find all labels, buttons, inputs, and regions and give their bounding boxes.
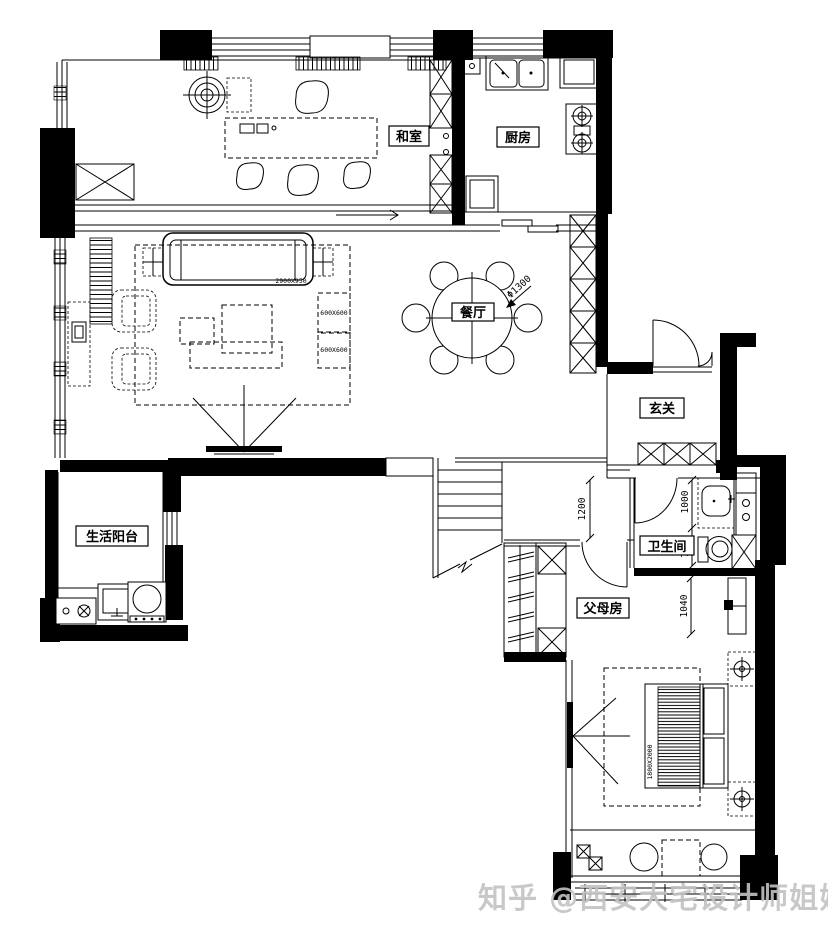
sofa-size-label: 2900X950 bbox=[275, 277, 306, 285]
window-sill-grille bbox=[296, 57, 360, 70]
side-cabinet-1: 600X600 bbox=[318, 293, 350, 333]
floor-plan-page: 和室 bbox=[0, 0, 828, 926]
kitchen-sliding-door bbox=[502, 220, 558, 232]
entry-label: 玄关 bbox=[649, 401, 675, 417]
living-room: 2900X950 600X600 600X600 bbox=[54, 225, 607, 458]
room-label-parents: 父母房 bbox=[577, 598, 629, 618]
kitchen-counter-appliance bbox=[560, 56, 598, 88]
bedroom-closet-stub bbox=[724, 578, 746, 634]
room-label-tatami: 和室 bbox=[389, 126, 429, 146]
entry-door bbox=[653, 320, 712, 366]
closet-dim: 1040 bbox=[679, 574, 695, 638]
dining-cabinet bbox=[570, 215, 596, 373]
divider-cabinet bbox=[430, 60, 452, 213]
window-tick bbox=[54, 420, 66, 434]
tv-screen bbox=[206, 446, 282, 452]
window-sill-grille bbox=[184, 57, 218, 70]
bay-furniture bbox=[577, 840, 727, 876]
bedroom-tv bbox=[567, 698, 630, 784]
room-label-bathroom: 卫生间 bbox=[640, 536, 694, 555]
corridor-width: 1200 bbox=[577, 497, 588, 520]
kitchen: 厨房 bbox=[464, 56, 598, 232]
lantern-symbol bbox=[183, 71, 231, 119]
washing-machine bbox=[128, 582, 166, 622]
tatami-label: 和室 bbox=[396, 129, 422, 145]
gas-stove bbox=[566, 104, 598, 154]
room-label-balcony: 生活阳台 bbox=[76, 526, 148, 546]
bathroom-door bbox=[635, 478, 677, 523]
dining-label: 餐厅 bbox=[459, 305, 486, 321]
hanger-marks bbox=[508, 552, 534, 642]
window-tick bbox=[54, 86, 66, 100]
tatami-table bbox=[225, 118, 377, 158]
side-cabinet-size: 600X600 bbox=[320, 309, 347, 317]
toilet bbox=[698, 537, 732, 563]
fridge bbox=[466, 176, 498, 212]
parents-bedroom: 1040 父母房 1800X2000 bbox=[504, 540, 756, 878]
side-cabinet-size: 600X600 bbox=[320, 346, 347, 354]
tatami-room: 和室 bbox=[54, 57, 452, 220]
floor-plan-canvas: 和室 bbox=[0, 0, 828, 926]
window-tick bbox=[54, 250, 66, 264]
armchair-bottom bbox=[112, 348, 156, 390]
closet-width: 1040 bbox=[679, 594, 690, 617]
corridor-wardrobe bbox=[504, 543, 566, 657]
corridor-dim: 1200 bbox=[577, 476, 594, 542]
top-windows bbox=[212, 36, 543, 58]
bath-dims: 1000 770 bbox=[680, 476, 696, 570]
stair-break-line bbox=[433, 544, 502, 578]
shaft bbox=[732, 535, 756, 569]
garden-stones bbox=[237, 81, 371, 196]
kitchen-sink bbox=[486, 56, 548, 90]
bedroom-door bbox=[582, 542, 627, 587]
balcony-cabinet bbox=[56, 598, 96, 624]
vanity-width: 1000 bbox=[680, 490, 691, 513]
window-tick bbox=[54, 362, 66, 376]
bed-blanket bbox=[658, 687, 700, 786]
bathroom-label: 卫生间 bbox=[647, 539, 686, 555]
room-label-entry: 玄关 bbox=[640, 398, 684, 418]
shoe-cabinet bbox=[638, 443, 716, 465]
radiator bbox=[90, 238, 112, 324]
wash-basin bbox=[698, 478, 735, 528]
room-label-kitchen: 厨房 bbox=[497, 127, 539, 147]
nightstand-top bbox=[728, 652, 756, 686]
stairs bbox=[386, 458, 607, 578]
tv-cabinet bbox=[68, 302, 90, 386]
room-label-dining: 餐厅 bbox=[452, 303, 494, 321]
armchair-top bbox=[112, 290, 156, 332]
watermark: 知乎 @西安大宅设计师姐姐 bbox=[478, 881, 828, 915]
parents-label: 父母房 bbox=[582, 601, 622, 617]
sofa: 2900X950 bbox=[163, 233, 313, 285]
window-sill-grille bbox=[408, 57, 446, 70]
balcony: 生活阳台 bbox=[56, 472, 177, 624]
sofa-side-table-left bbox=[143, 248, 163, 276]
balcony-label: 生活阳台 bbox=[86, 529, 138, 545]
bed-size-label: 1800X2000 bbox=[646, 744, 654, 779]
vanity-counter bbox=[736, 473, 756, 535]
coffee-table bbox=[180, 305, 282, 368]
bathroom: 1000 770 卫生间 bbox=[607, 473, 760, 570]
bed: 1800X2000 bbox=[604, 668, 728, 806]
window-bay-recess bbox=[310, 36, 390, 58]
window-tick bbox=[54, 306, 66, 320]
dining-area: Φ1300 餐厅 bbox=[402, 215, 596, 374]
side-cabinet-2: 600X600 bbox=[318, 332, 350, 368]
kitchen-label: 厨房 bbox=[505, 130, 531, 146]
tv-wall bbox=[193, 385, 296, 454]
nightstand-bottom bbox=[728, 782, 756, 816]
sofa-side-table-right bbox=[313, 248, 333, 276]
